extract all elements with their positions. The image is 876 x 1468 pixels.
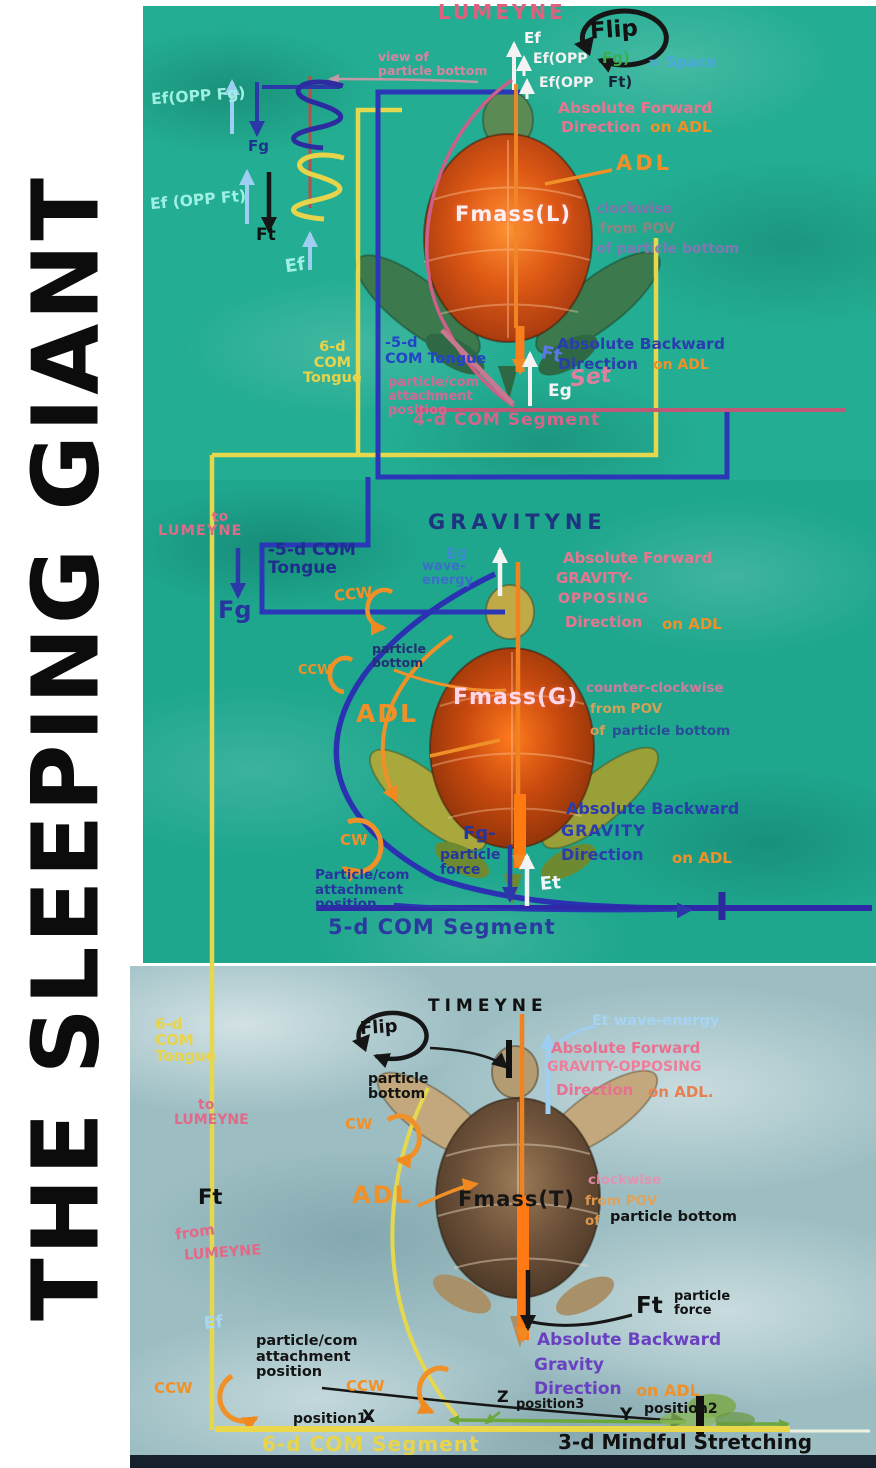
ef-label-p1: Ef <box>284 255 307 277</box>
pov-particlebottom-p3: particle bottom <box>610 1210 737 1226</box>
adl-label-p3: ADL <box>352 1183 412 1209</box>
on-adl2-p1: on ADL <box>653 358 709 373</box>
fmass-t-label: Fmass(T) <box>458 1188 575 1211</box>
segment-label-p3: 6-d COM Segment <box>262 1434 480 1456</box>
pov-particlebottom-p1: of particle bottom <box>596 242 739 257</box>
direction2-p3: Direction <box>534 1380 622 1398</box>
absolute-forward-p1: Absolute Forward <box>558 100 712 117</box>
on-adl-p3: on ADL. <box>648 1084 714 1100</box>
y-axis-label: Y <box>620 1406 632 1424</box>
gravity-opposing-p3: GRAVITY-OPPOSING <box>547 1060 701 1075</box>
panel-timeyne <box>130 966 876 1458</box>
on-adl-p1: on ADL <box>650 119 712 136</box>
lumeyne-label-p3: LUMEYNE <box>174 1113 249 1128</box>
ef-label-p3: Ef <box>203 1313 224 1333</box>
flip-label-p3: Flip <box>359 1017 398 1039</box>
set-label-p1: Set <box>569 364 613 393</box>
tongue5-label-p2: -5-d COM Tongue <box>268 541 356 578</box>
x-axis-label: X <box>362 1408 375 1426</box>
cw-label-p3: CW <box>345 1116 373 1132</box>
gravity-opposing2-p2: OPPOSING <box>558 592 649 607</box>
ccw2-label-p3: CCW <box>346 1378 385 1394</box>
position3-label: position3 <box>516 1398 584 1412</box>
pov-of-p2: of <box>590 724 605 739</box>
fmass-g-label: Fmass(G) <box>453 686 578 710</box>
flip-label-p1: Flip <box>589 16 639 44</box>
lumeyne-heading: LUMEYNE <box>438 2 566 24</box>
to-label-p3: to <box>198 1098 214 1113</box>
panel-gravityne <box>143 480 876 963</box>
eg-label-p1: Eg <box>548 382 572 400</box>
direction-p1: Direction <box>561 119 641 136</box>
gravityne-heading: GRAVITYNE <box>428 511 607 534</box>
ft-particle-label-p3: Ft <box>636 1294 663 1319</box>
gravity-p3: Gravity <box>534 1356 604 1374</box>
annotated-turtle-diagram: THE SLEEPING GIANT LUMEYNE Flip view of … <box>0 0 876 1468</box>
position2-label: position2 <box>644 1402 718 1417</box>
tongue6-label-p3: 6-d COM Tongue <box>155 1016 216 1065</box>
page-title: THE SLEEPING GIANT <box>13 175 120 1321</box>
particle-bottom-label-p3: particle bottom <box>368 1072 428 1102</box>
pov-clockwise-p3: clockwise <box>588 1173 661 1188</box>
attach-label-p3: particle/com attachment position <box>256 1334 358 1381</box>
pov-frompov-p2: from POV <box>590 702 662 717</box>
cw-label-p2: CW <box>340 832 368 848</box>
absolute-backward-p3: Absolute Backward <box>537 1331 721 1349</box>
position1-label: position1- <box>293 1412 372 1427</box>
gravity-p2: GRAVITY <box>561 822 646 839</box>
view-particle-bottom-label: view of particle bottom <box>378 50 487 77</box>
ccw2-label-p2: CCW <box>298 664 331 678</box>
ef-opp-fg-label: Ef(OPP <box>533 52 587 67</box>
on-adl2-p2: on ADL <box>672 850 732 866</box>
attach-label-p2: Particle/com attachment position <box>315 868 409 912</box>
ef-opp-ft-ft-part: Ft) <box>608 74 632 90</box>
pov-frompov-p1: from POV <box>600 222 675 237</box>
et-wave-energy-label: Et wave-energy <box>592 1014 719 1030</box>
stretching-label-p3: 3-d Mindful Stretching <box>558 1432 812 1454</box>
pov-clockwise-p1: clockwise <box>596 202 672 217</box>
ccw1-label-p3: CCW <box>154 1380 193 1396</box>
tongue5-label-p1: -5-d COM Tongue <box>385 336 486 367</box>
segment-label-p1: 4-d COM Segment <box>413 411 600 429</box>
absolute-backward-p2: Absolute Backward <box>566 800 739 817</box>
ef-top-label: Ef <box>524 30 541 46</box>
ft-label-p3: Ft <box>198 1186 222 1209</box>
absolute-forward-p3: Absolute Forward <box>551 1040 700 1056</box>
direction-p3: Direction <box>556 1082 633 1098</box>
wave-energy-label-p2: wave- energy <box>422 560 473 588</box>
fg-label-p2: Fg <box>218 598 252 624</box>
ft-particle-force-label-p3: particle force <box>674 1290 730 1318</box>
on-adl2-p3: on ADL <box>636 1382 700 1399</box>
pov-of-p3: of <box>585 1214 600 1229</box>
particle-bottom-label-p2: particle bottom <box>372 642 426 669</box>
direction-p2: Direction <box>565 614 642 630</box>
et-label-p2: Et <box>539 873 562 894</box>
absolute-backward-p1: Absolute Backward <box>557 336 725 353</box>
fg-particle-label-p2: Fg- <box>463 824 496 843</box>
direction2-p2: Direction <box>561 846 644 863</box>
segment-label-p2: 5-d COM Segment <box>328 916 556 939</box>
pov-frompov-p3: from POV <box>585 1194 657 1209</box>
fmass-l-label: Fmass(L) <box>455 203 571 226</box>
absolute-forward-p2: Absolute Forward <box>563 550 712 566</box>
tongue6-label-p1: 6-d COM Tongue <box>303 340 362 387</box>
gravity-opposing1-p2: GRAVITY- <box>556 570 633 586</box>
photo-bottom-border <box>130 1455 876 1468</box>
equals-space-label: = Space <box>648 54 717 70</box>
ft-label-p1: Ft <box>256 226 276 244</box>
pov-ccw-p2: counter-clockwise <box>586 681 724 696</box>
ef-opp-fg-fg-part: Fg) <box>602 50 630 66</box>
fg-label-p1: Fg <box>248 138 269 154</box>
z-axis-label: Z <box>497 1388 509 1405</box>
fg-particle-force-label-p2: particle force <box>440 848 500 878</box>
panel-lumeyne <box>143 6 876 480</box>
lumeyne-label-p2: LUMEYNE <box>158 524 242 540</box>
adl-label-p2: ADL <box>356 700 418 727</box>
adl-label-p1: ADL <box>616 152 672 175</box>
ef-opp-ft-label: Ef(OPP <box>539 76 593 91</box>
timeyne-heading: TIMEYNE <box>428 997 548 1015</box>
pov-particlebottom-p2: particle bottom <box>612 724 730 739</box>
on-adl-p2: on ADL <box>662 616 722 632</box>
ccw1-label-p2: CCW <box>333 584 373 604</box>
